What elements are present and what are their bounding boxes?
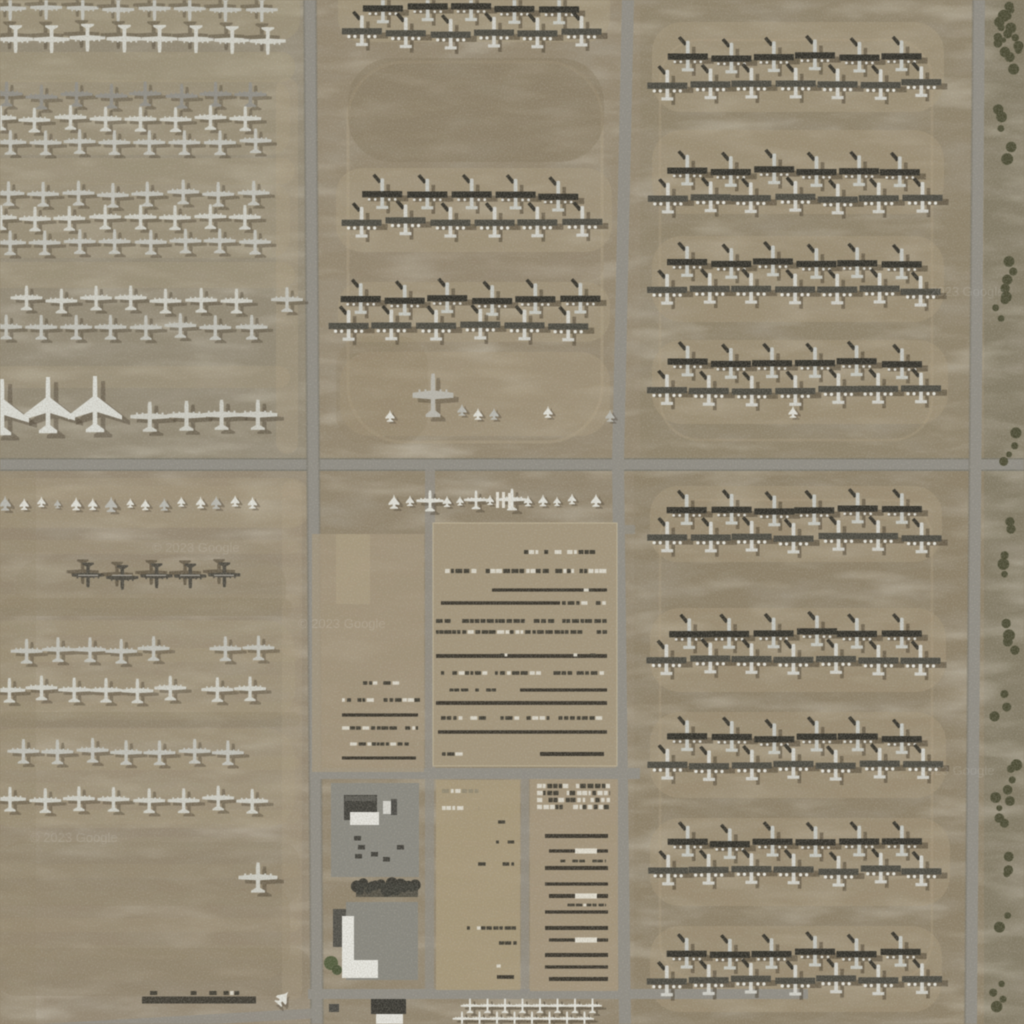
svg-text:© 2023 Google: © 2023 Google xyxy=(152,540,240,555)
svg-text:2023 Google: 2023 Google xyxy=(920,763,994,778)
svg-text:© 2023 Google: © 2023 Google xyxy=(30,830,118,845)
svg-text:2023 Google: 2023 Google xyxy=(930,284,1004,299)
svg-text:© 2023 Google: © 2023 Google xyxy=(298,616,386,631)
